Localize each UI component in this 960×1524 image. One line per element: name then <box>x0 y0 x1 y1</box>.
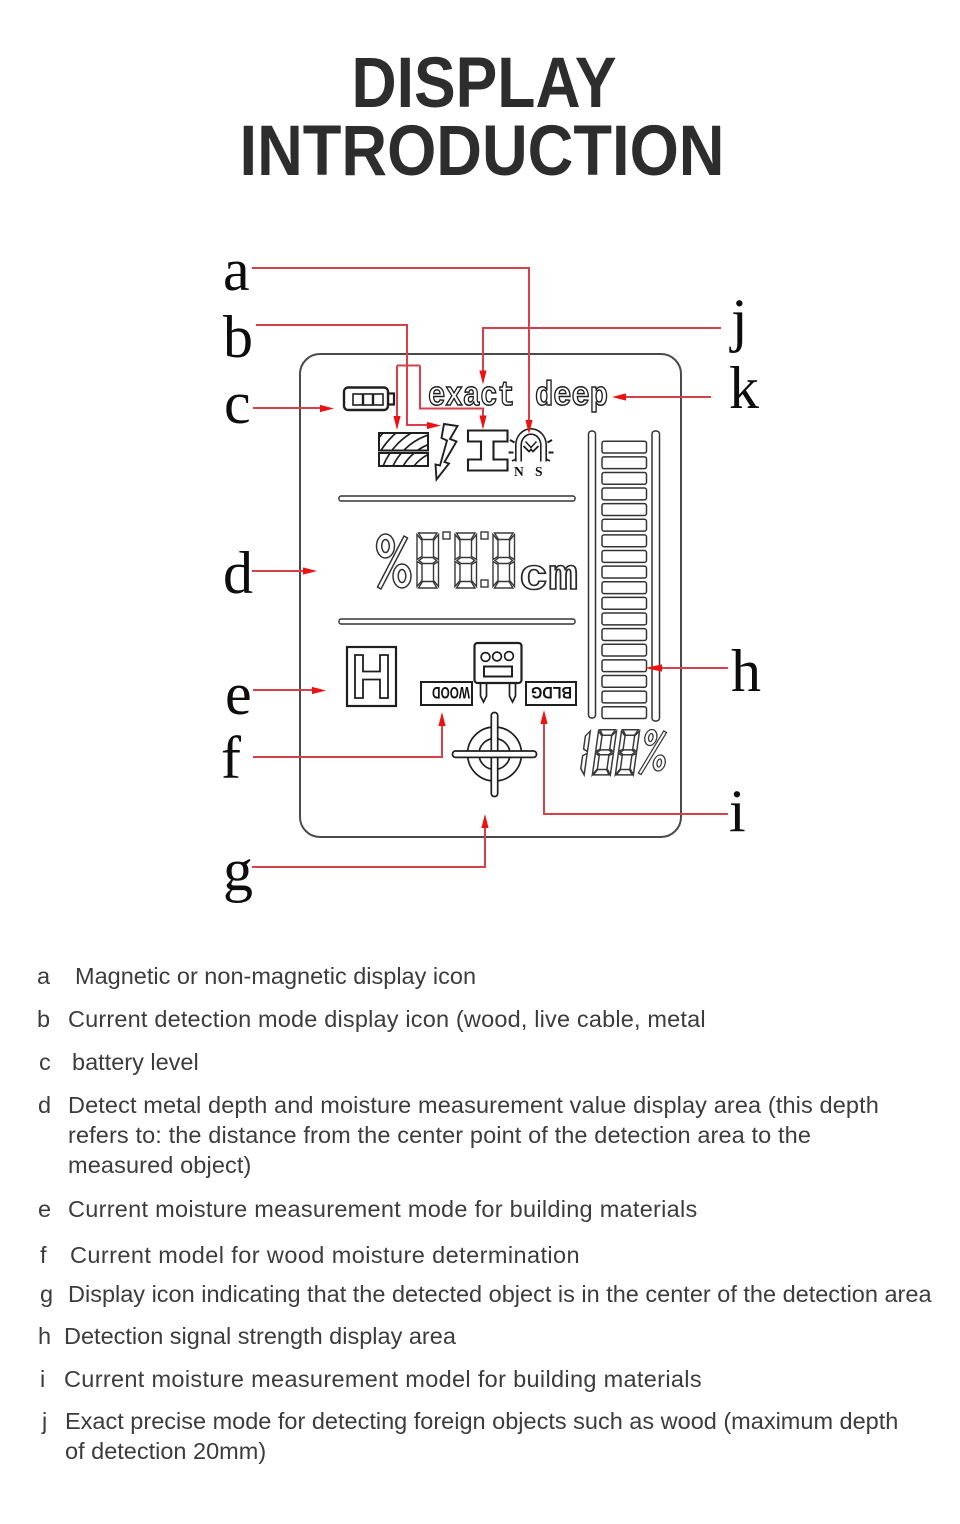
svg-text:a: a <box>223 237 250 303</box>
svg-text:exact: exact <box>428 378 515 416</box>
svg-text:g: g <box>223 837 253 903</box>
svg-text:f: f <box>221 725 241 791</box>
svg-text:b: b <box>223 304 253 370</box>
svg-text:S: S <box>535 464 543 479</box>
svg-text:e: e <box>225 661 252 727</box>
svg-text:BLDG: BLDG <box>531 683 572 702</box>
svg-text:N: N <box>514 464 524 479</box>
svg-text:i: i <box>729 778 746 844</box>
svg-text:c: c <box>224 370 251 436</box>
svg-text:j: j <box>729 287 748 353</box>
svg-text:cm: cm <box>519 553 578 603</box>
svg-text:h: h <box>731 638 761 704</box>
svg-text:deep: deep <box>535 378 608 416</box>
svg-text:d: d <box>223 540 253 606</box>
svg-text:k: k <box>729 355 759 421</box>
svg-text:WOOD: WOOD <box>432 683 470 702</box>
